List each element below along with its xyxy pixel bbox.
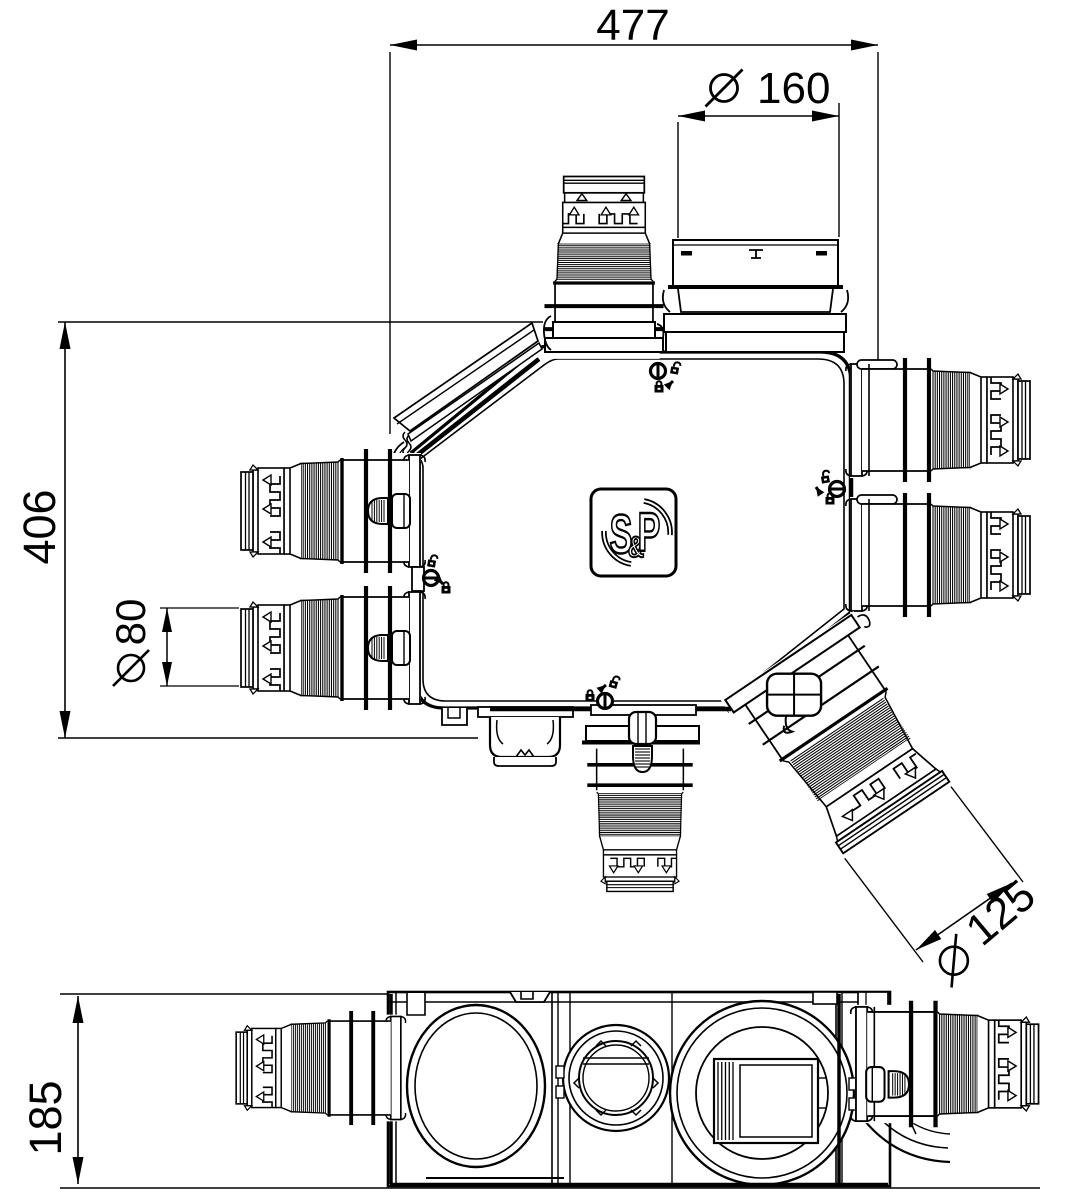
svg-text:185: 185 [20, 1080, 71, 1155]
svg-text:80: 80 [107, 599, 154, 646]
svg-text:160: 160 [757, 64, 830, 113]
svg-text:P: P [638, 502, 661, 563]
svg-text:406: 406 [14, 489, 65, 564]
svg-text:477: 477 [596, 1, 669, 50]
